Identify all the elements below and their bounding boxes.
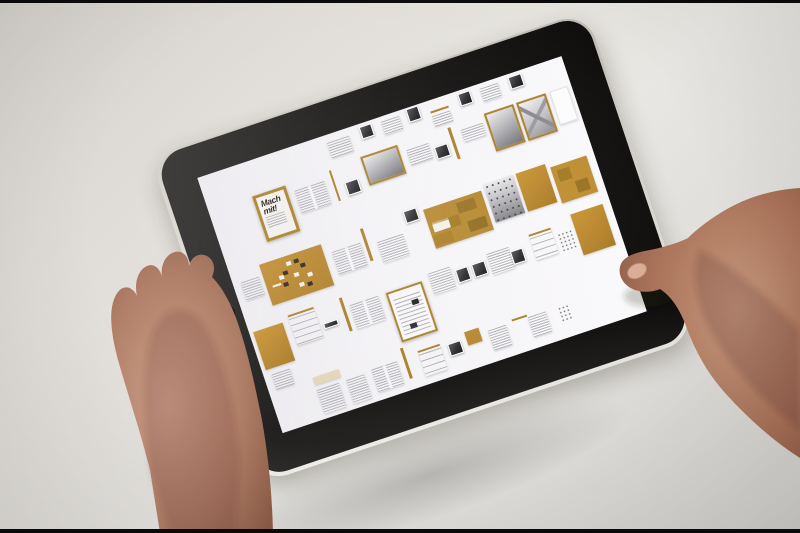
photo-scene: Mach mit! bbox=[0, 0, 800, 533]
spread-fdoc[interactable] bbox=[386, 281, 439, 342]
spread-photo-w[interactable] bbox=[323, 318, 340, 329]
spread-text[interactable] bbox=[487, 325, 512, 351]
spread-photo[interactable] bbox=[345, 178, 362, 195]
spread-fphoto[interactable] bbox=[360, 145, 406, 185]
spread-orange[interactable] bbox=[570, 204, 616, 256]
spread-text2[interactable] bbox=[295, 181, 332, 214]
spread-photo[interactable] bbox=[510, 248, 527, 265]
spread-text[interactable] bbox=[271, 368, 294, 389]
spread-text[interactable] bbox=[240, 277, 264, 301]
spread-photo[interactable] bbox=[405, 106, 422, 123]
spread-ospread[interactable] bbox=[423, 191, 494, 249]
spread-photo[interactable] bbox=[403, 207, 420, 224]
spread-photo[interactable] bbox=[358, 123, 375, 140]
home-button[interactable] bbox=[211, 299, 239, 327]
photo-border-top bbox=[0, 0, 800, 3]
spread-hline bbox=[512, 315, 527, 322]
spread-text2[interactable] bbox=[371, 361, 404, 392]
spread-diagram[interactable] bbox=[259, 245, 335, 307]
spread-texth[interactable] bbox=[288, 307, 324, 346]
spread-vline bbox=[339, 297, 353, 331]
spread-text[interactable] bbox=[317, 383, 347, 413]
spread-photo[interactable] bbox=[457, 90, 474, 107]
poster[interactable]: Mach mit! bbox=[197, 56, 647, 433]
spread-dots bbox=[556, 229, 577, 252]
spread-vline bbox=[400, 348, 413, 379]
spread-text[interactable] bbox=[346, 375, 372, 404]
spread-text[interactable] bbox=[327, 136, 354, 159]
spread-text2[interactable] bbox=[349, 296, 386, 329]
spread-dots bbox=[556, 304, 572, 323]
spread-ospread2[interactable] bbox=[550, 156, 598, 204]
tablet-screen[interactable]: Mach mit! bbox=[197, 56, 647, 433]
spread-text2[interactable] bbox=[331, 243, 368, 276]
photo-border-bottom bbox=[0, 529, 800, 533]
spread-photo[interactable] bbox=[434, 143, 451, 160]
spread-text[interactable] bbox=[428, 267, 457, 295]
spread-vline bbox=[329, 170, 342, 201]
home-button-icon bbox=[218, 307, 231, 320]
right-hand-shading bbox=[695, 250, 800, 430]
spread-photo[interactable] bbox=[447, 340, 464, 357]
spread-text[interactable] bbox=[381, 116, 403, 135]
spread-photo[interactable] bbox=[471, 261, 488, 278]
spread-cover[interactable]: Mach mit! bbox=[252, 186, 300, 243]
spread-text[interactable] bbox=[432, 110, 454, 126]
spread-texth[interactable] bbox=[528, 227, 558, 260]
spread-texth[interactable] bbox=[417, 344, 447, 377]
spread-photo[interactable] bbox=[508, 73, 525, 90]
spread-text[interactable] bbox=[527, 311, 552, 337]
spread-text[interactable] bbox=[461, 122, 487, 142]
spread-photo[interactable] bbox=[455, 266, 472, 283]
spread-text[interactable] bbox=[407, 143, 434, 166]
spread-text[interactable] bbox=[377, 234, 409, 263]
spread-text[interactable] bbox=[479, 83, 501, 102]
spread-mini-o[interactable] bbox=[464, 328, 483, 346]
spread-orange[interactable] bbox=[253, 323, 295, 371]
